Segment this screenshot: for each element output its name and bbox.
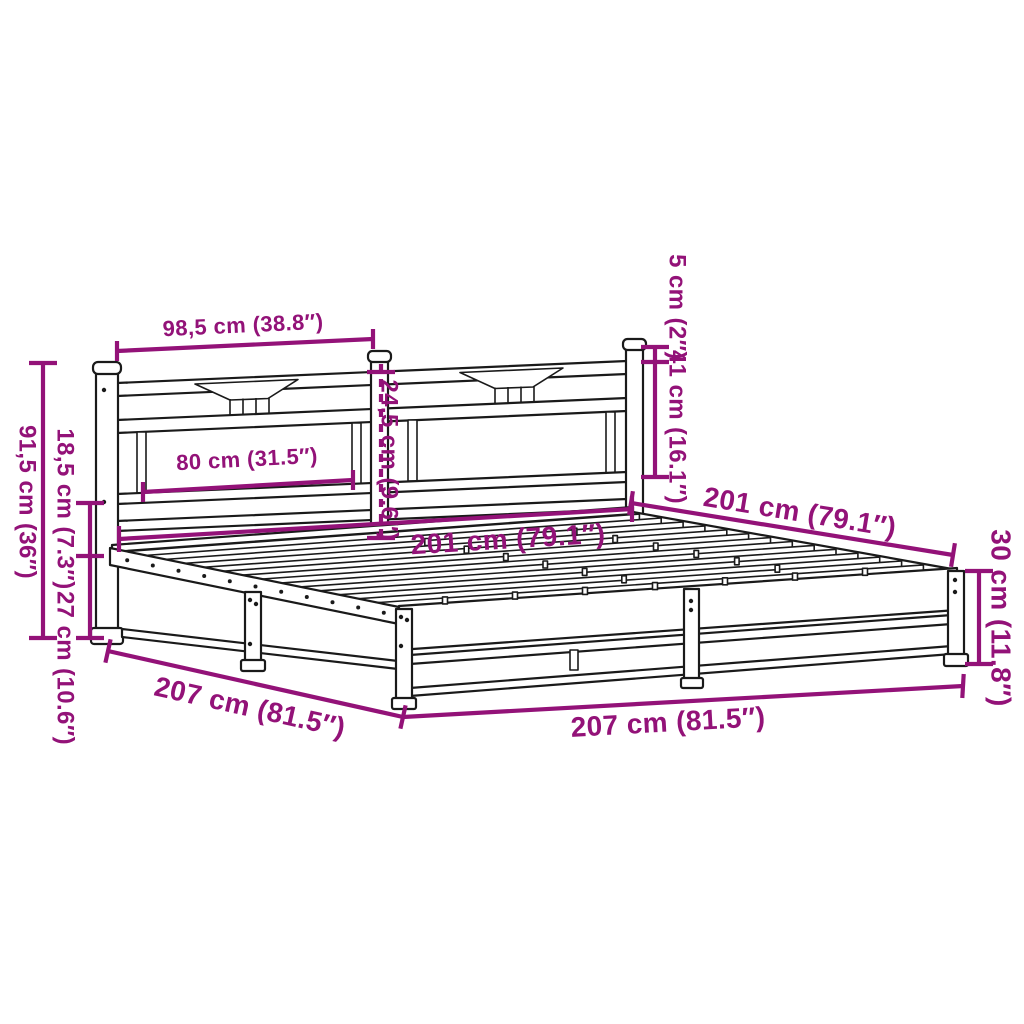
diagram-canvas: 98,5 cm (38.8″) 80 cm (31.5″) 24,5 cm (9… xyxy=(0,0,1024,1024)
dim-label-post-above-rail: 5 cm (2″) xyxy=(664,254,691,360)
hole xyxy=(356,606,360,610)
headboard-decor-left xyxy=(195,380,298,401)
hole xyxy=(125,558,129,562)
screw xyxy=(399,615,403,619)
screw xyxy=(248,598,252,602)
hole xyxy=(279,590,283,594)
center-support-foot xyxy=(570,650,578,670)
dim-label-side-upper-height: 18,5 cm (7.3″) xyxy=(52,428,79,589)
front-left-corner-leg xyxy=(396,609,412,701)
headboard-post-left xyxy=(96,369,118,630)
clip xyxy=(613,536,618,543)
dim-label-headboard-drop: 24,5 cm (9.6″) xyxy=(376,379,403,540)
hole xyxy=(331,600,335,604)
hole xyxy=(202,574,206,578)
hook xyxy=(583,587,588,594)
panel-bar xyxy=(606,412,615,473)
hook xyxy=(513,592,518,599)
clip xyxy=(735,558,740,565)
dim-headboard-total-height: 91,5 cm (36″) xyxy=(14,363,58,638)
screw xyxy=(953,578,957,582)
screw xyxy=(399,644,403,648)
clip xyxy=(654,543,659,550)
foot-corner-leg-foot xyxy=(944,654,968,666)
hole xyxy=(254,585,258,589)
dim-label-panel-width: 80 cm (31.5″) xyxy=(176,443,319,475)
hook xyxy=(443,597,448,604)
screw xyxy=(254,602,258,606)
clip xyxy=(694,550,699,557)
headboard-decor-right xyxy=(460,368,563,389)
screw xyxy=(248,642,252,646)
hole xyxy=(228,579,232,583)
headboard-post-middle-cap xyxy=(368,351,391,362)
hook xyxy=(723,578,728,585)
hook xyxy=(793,573,798,580)
screw xyxy=(102,388,106,392)
bed-frame-dimension-diagram: 98,5 cm (38.8″) 80 cm (31.5″) 24,5 cm (9… xyxy=(0,0,1024,1024)
screw xyxy=(689,608,693,612)
hook xyxy=(863,568,868,575)
hook xyxy=(653,583,658,590)
dim-headboard-section-width: 98,5 cm (38.8″) xyxy=(117,309,373,361)
left-middle-leg-foot xyxy=(241,660,265,671)
dim-label-headboard-section-width: 98,5 cm (38.8″) xyxy=(162,309,324,342)
screw xyxy=(405,618,409,622)
dim-label-frame-height: 30 cm (11.8″) xyxy=(986,529,1017,706)
hole xyxy=(151,564,155,568)
left-middle-leg xyxy=(245,592,261,664)
hole xyxy=(382,611,386,615)
clip xyxy=(582,568,587,575)
dim-label-headboard-above-frame: 41 cm (16.1″) xyxy=(664,350,691,504)
dim-headboard-right-heights: 5 cm (2″) 41 cm (16.1″) xyxy=(641,254,691,504)
hole xyxy=(305,595,309,599)
clip xyxy=(775,565,780,572)
dim-frame-height: 30 cm (11.8″) xyxy=(965,529,1017,706)
foot-corner-leg xyxy=(948,571,964,657)
clip xyxy=(622,576,627,583)
front-middle-leg-foot xyxy=(681,678,703,688)
clip xyxy=(543,561,548,568)
dim-label-headboard-total-height: 91,5 cm (36″) xyxy=(14,425,41,579)
hole xyxy=(177,569,181,573)
screw xyxy=(689,599,693,603)
dim-label-side-lower-height: 27 cm (10.6″) xyxy=(52,591,79,745)
panel-bar xyxy=(408,420,417,481)
headboard-post-left-cap xyxy=(93,362,121,374)
screw xyxy=(953,590,957,594)
